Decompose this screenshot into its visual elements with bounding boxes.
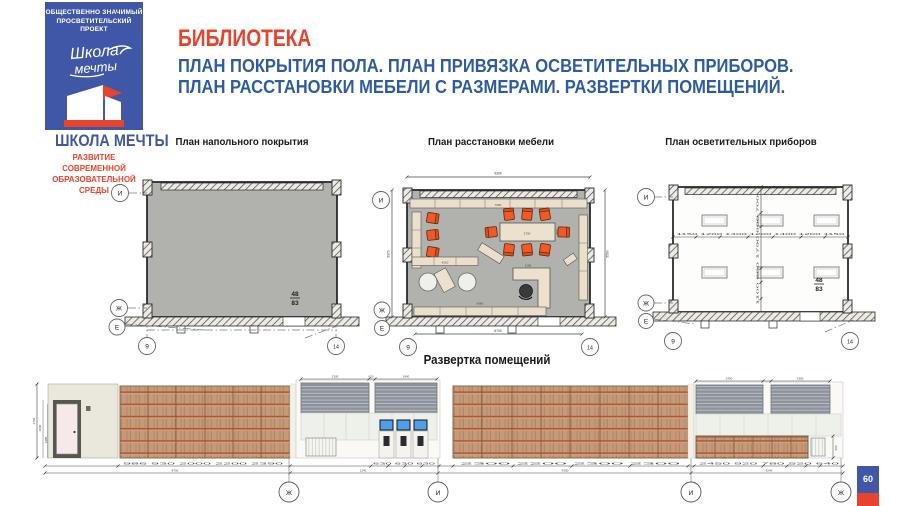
school-building-icon	[59, 80, 129, 130]
room-number: 48	[291, 291, 299, 298]
total-center: 1240	[360, 469, 367, 473]
shelf-bottom-dim: 6080	[477, 302, 484, 306]
window-blinds	[301, 383, 369, 413]
pilaster-strip	[290, 384, 296, 458]
radiator	[811, 438, 825, 456]
axis-И: И	[118, 191, 123, 198]
floor-plan-title: План напольного покрытия	[176, 136, 309, 148]
axis-Ж: Ж	[643, 301, 649, 308]
dim-top: 9300	[494, 172, 502, 176]
room-area: 83	[815, 286, 823, 293]
axis-И: И	[644, 195, 649, 202]
page-number-tab: 60	[857, 466, 879, 493]
bottom-dimensions: 986 930 2000 2200 2390 630 630 630 2300 …	[44, 461, 845, 474]
door-height-dim2: 1985	[44, 436, 48, 443]
axis-14: 14	[847, 340, 853, 346]
axis-mark-2: И	[436, 490, 441, 497]
chain-center: 630 630 630	[373, 461, 436, 465]
axis-Е: Е	[115, 325, 120, 332]
computer-stations	[379, 420, 428, 458]
computer-screen	[397, 420, 410, 430]
window-blinds	[696, 385, 763, 414]
blinds-dim-3: 2400	[403, 375, 410, 379]
page-title: БИБЛИОТЕКА	[178, 25, 311, 53]
axis-mark-3: И	[689, 490, 694, 497]
elevation-drawing: 2760 2000 1985	[25, 370, 880, 506]
furniture-plan-title: План расстановки мебели	[428, 136, 554, 148]
dim-right: 5590	[606, 250, 610, 258]
wall-height-dim: 2760	[32, 417, 36, 424]
lighting-plan-drawing: 1150 1200 1400 1200 1400 1200 1150 1100 …	[635, 160, 890, 360]
cabinet-height-dim: 600	[834, 445, 838, 450]
axis-Е: Е	[644, 319, 649, 326]
door-leaf	[57, 404, 78, 454]
column-stubs	[701, 321, 777, 328]
column-stubs	[177, 326, 258, 333]
bottom-wall-hatch	[125, 317, 359, 326]
v-dim-chain: 1100 600 1790 600 700	[755, 194, 759, 305]
door-handle	[73, 431, 75, 433]
height-dimensions: 2760 2000 1985	[32, 383, 48, 460]
axis-14: 14	[587, 346, 593, 352]
total-end: 5240	[766, 469, 773, 473]
top-wall-hatch	[161, 183, 323, 190]
lighting-plan-title: План осветительных приборов	[665, 136, 816, 148]
axis-Ж: Ж	[379, 308, 385, 315]
chain-left: 986 930 2000 2200 2390	[123, 461, 285, 465]
bookshelf-right	[453, 386, 688, 458]
wall-segment-door	[48, 384, 118, 458]
door-opening	[283, 317, 305, 326]
shelf-top-dim: 7060	[495, 203, 502, 207]
brand-name-text: ШКОЛА МЕЧТЫ	[55, 131, 169, 151]
axis-9: 9	[671, 339, 675, 346]
page-subtitle-line1: ПЛАН ПОКРЫТИЯ ПОЛА. ПЛАН ПРИВЯЗКА ОСВЕТИ…	[178, 56, 794, 77]
blinds-dim-2: 620	[368, 375, 373, 379]
reading-chairs-left	[426, 212, 439, 258]
door-height-dim1: 2000	[38, 424, 42, 431]
column-stubs	[436, 326, 516, 333]
windows	[696, 414, 841, 436]
bookshelf-left	[120, 386, 290, 458]
computer-screen	[380, 420, 393, 430]
office-chair	[520, 285, 533, 298]
wall-shelving-top: 7060	[410, 199, 587, 208]
page-subtitle-line2: ПЛАН РАССТАНОВКИ МЕБЕЛИ С РАЗМЕРАМИ. РАЗ…	[178, 77, 785, 98]
window-blinds	[771, 385, 830, 414]
chain-right-wall: 2300 2200 2300 2300	[460, 461, 682, 465]
axis-9: 9	[406, 345, 410, 352]
logo-script-swoosh	[58, 42, 134, 78]
computer-screen	[414, 420, 427, 430]
total-right: 9300	[562, 469, 569, 473]
logo-project-line1: ОБЩЕСТВЕННО ЗНАЧИМЫЙ	[45, 9, 143, 18]
window-blinds	[375, 383, 437, 413]
big-reading-table: 2700 900	[500, 223, 559, 241]
pilaster-strip	[688, 384, 694, 458]
floor-room	[125, 180, 359, 333]
blinds-dim-4: 2400	[726, 377, 733, 381]
wall-segment-windows-left: 2300 620 2400	[296, 375, 440, 459]
total-left: 8700	[172, 469, 179, 473]
axis-mark-1: Ж	[286, 490, 292, 497]
chain-end: 2450 920 780 520 640	[699, 461, 841, 465]
axis-Е: Е	[380, 326, 385, 333]
logo-project-line2: ПРОСВЕТИТЕЛЬСКИЙ ПРОЕКТ	[45, 18, 143, 35]
blinds-dim-5: 2300	[797, 377, 804, 381]
floor-plan-drawing: И Ж Е 9 14 48 83	[105, 160, 365, 360]
low-cabinets	[696, 436, 808, 458]
logo-project-text: ОБЩЕСТВЕННО ЗНАЧИМЫЙ ПРОСВЕТИТЕЛЬСКИЙ ПР…	[45, 9, 143, 35]
shelf-mid-dim: 4210	[442, 261, 449, 265]
brand-name: ШКОЛА МЕЧТЫ	[45, 131, 143, 151]
axis-14: 14	[333, 345, 339, 351]
axis-mark-4: Ж	[838, 490, 844, 497]
radiator	[306, 438, 336, 456]
light-switch	[86, 406, 91, 411]
table-length-dim: 2700	[524, 232, 531, 236]
axis-Ж: Ж	[116, 306, 122, 313]
presentation-slide: ОБЩЕСТВЕННО ЗНАЧИМЫЙ ПРОСВЕТИТЕЛЬСКИЙ ПР…	[0, 0, 900, 506]
room-area: 83	[291, 300, 299, 307]
furniture-plan-drawing: 7060 2700 900	[370, 160, 632, 360]
axis-И: И	[379, 198, 384, 205]
page-tab-accent	[857, 493, 879, 506]
dim-left: 5370	[387, 250, 391, 258]
blinds-dim-1: 2300	[332, 375, 339, 379]
lighting-room	[653, 185, 875, 328]
wall-segment-windows-right: 2400 2300 600	[694, 377, 843, 460]
room-number: 48	[815, 277, 823, 284]
axis-9: 9	[145, 344, 149, 351]
desk-dim: 1190	[525, 264, 532, 268]
dim-bottom: 8700	[494, 329, 502, 333]
